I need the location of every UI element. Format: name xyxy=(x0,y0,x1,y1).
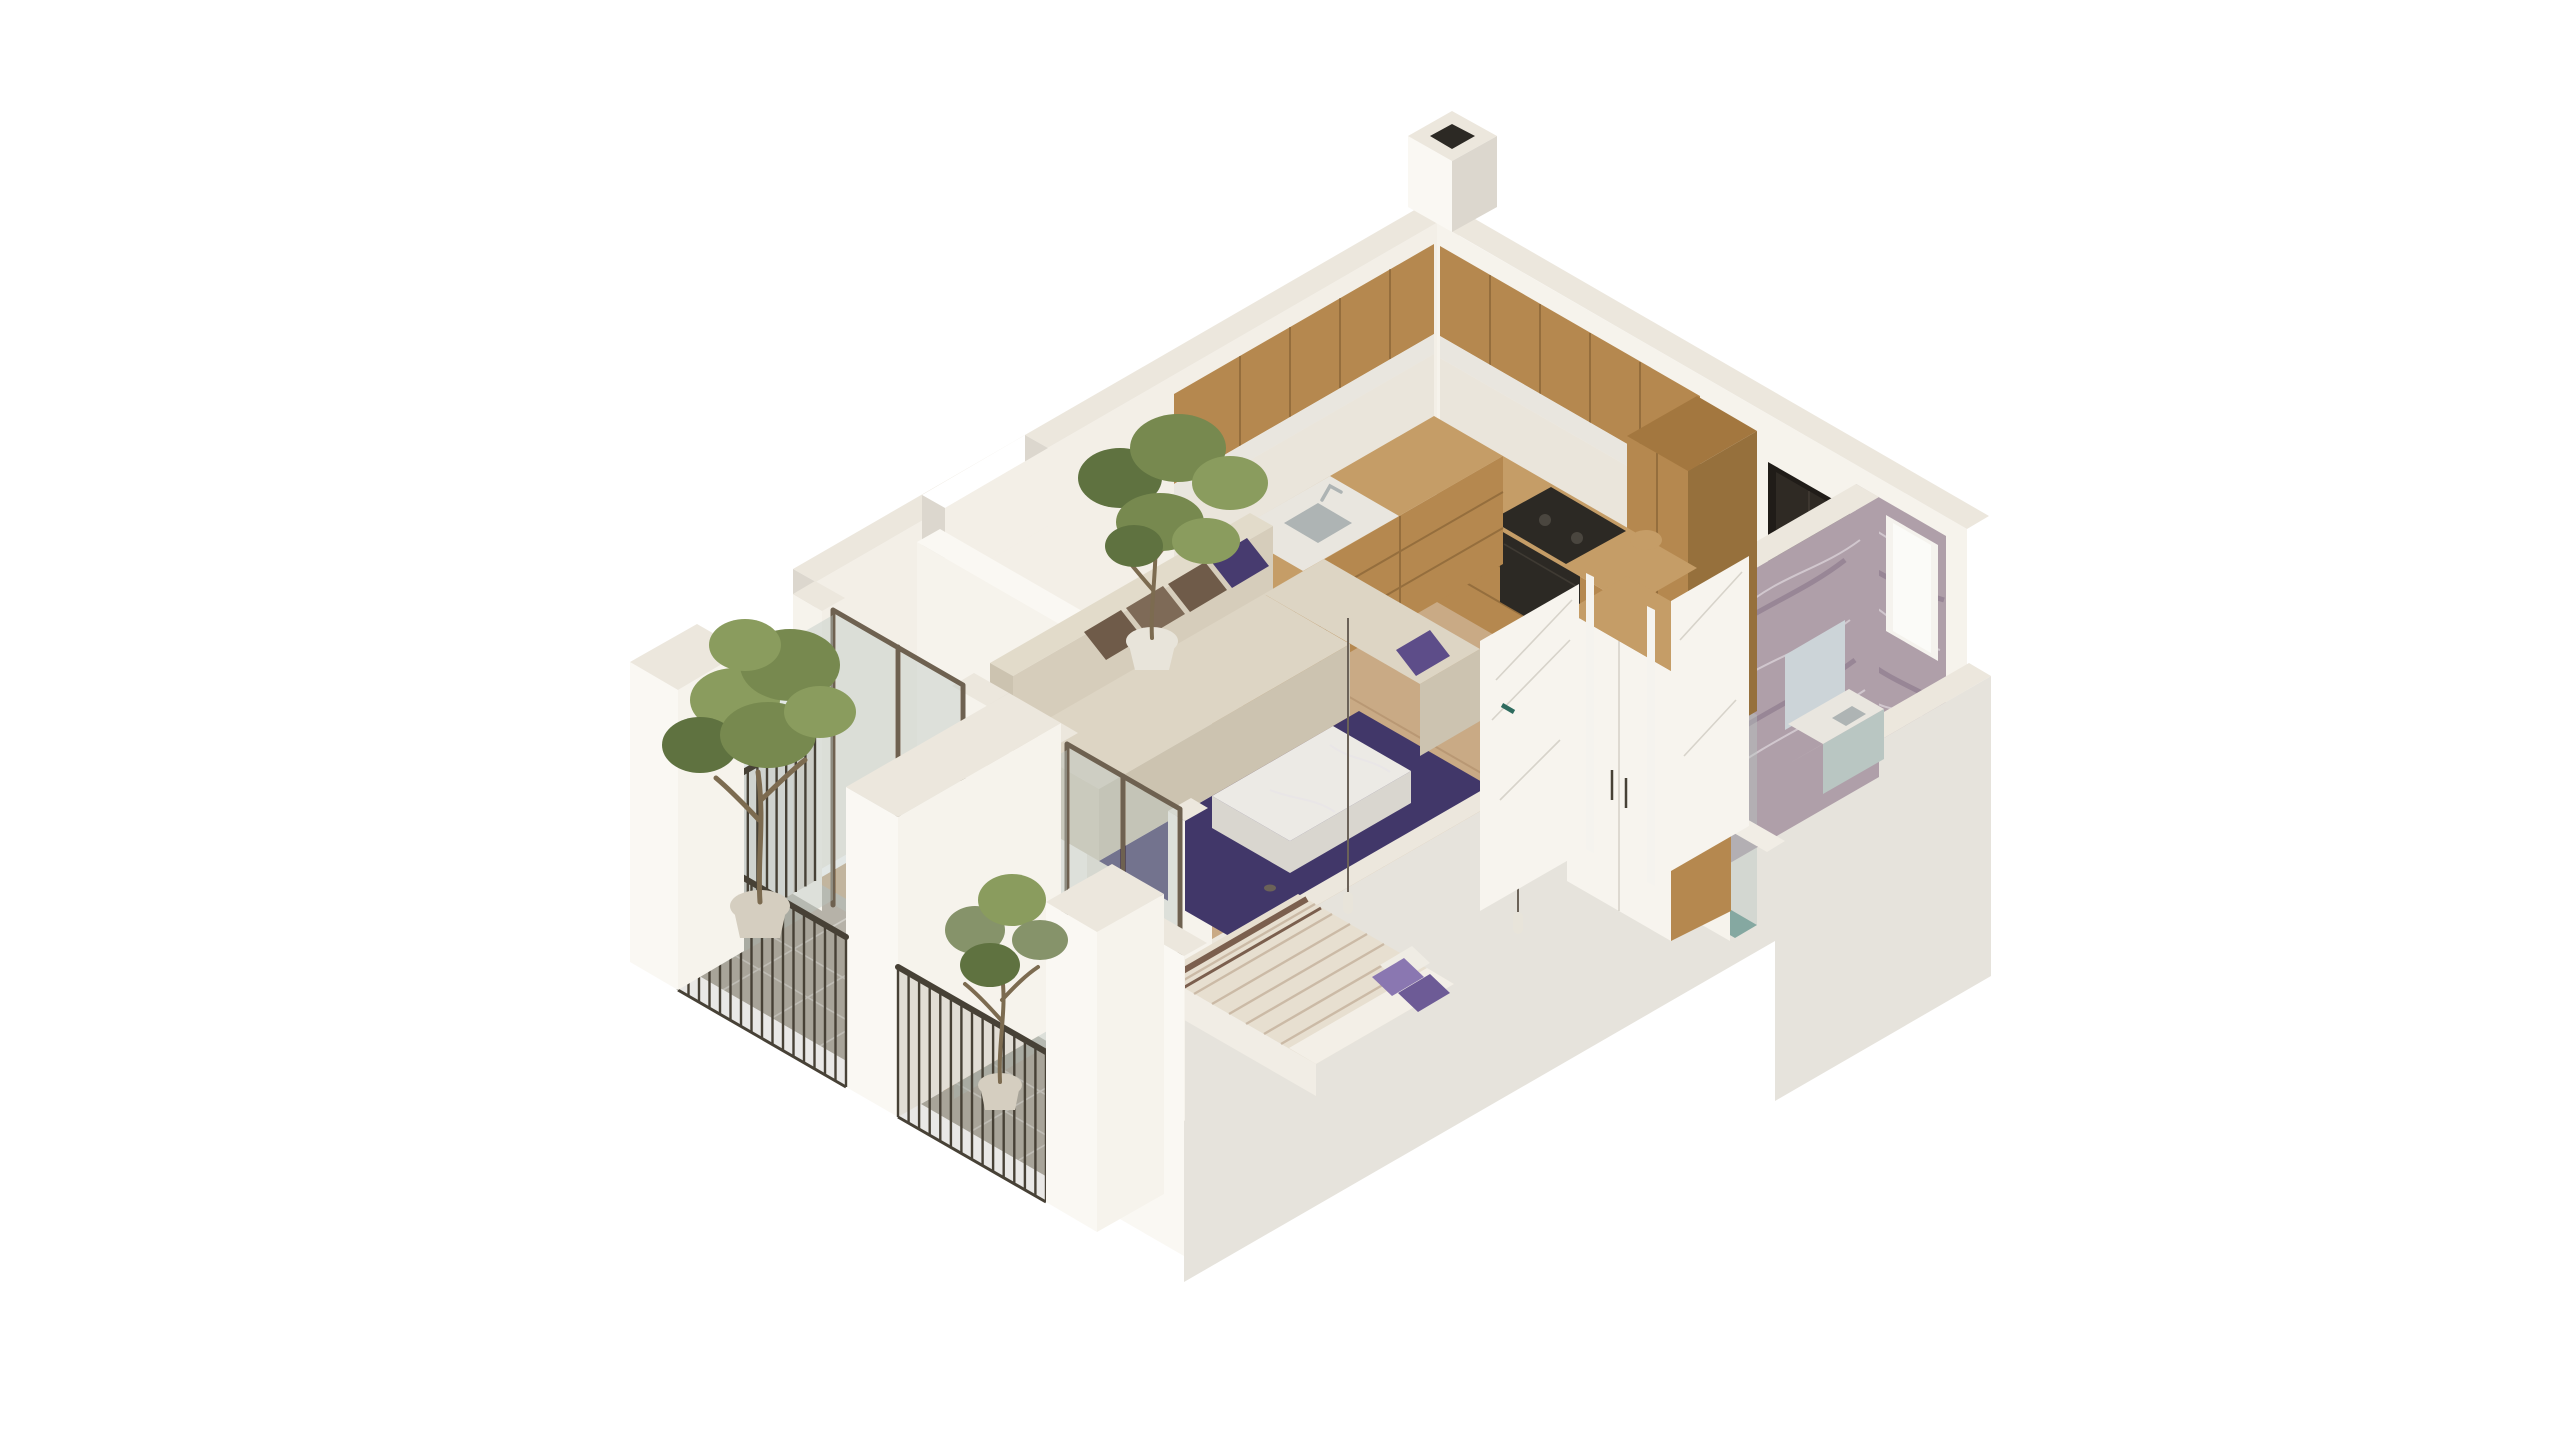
bedroom-door xyxy=(1480,584,1579,911)
floorplan-render-canvas xyxy=(0,0,2560,1440)
round-cutting-board xyxy=(1630,530,1662,550)
balcony-east-pier xyxy=(1046,864,1164,1232)
bathroom-door xyxy=(1671,556,1749,871)
floorplan-render-page xyxy=(0,0,2560,1440)
chimney-vent xyxy=(1408,111,1497,232)
floor-drain xyxy=(1264,885,1276,892)
